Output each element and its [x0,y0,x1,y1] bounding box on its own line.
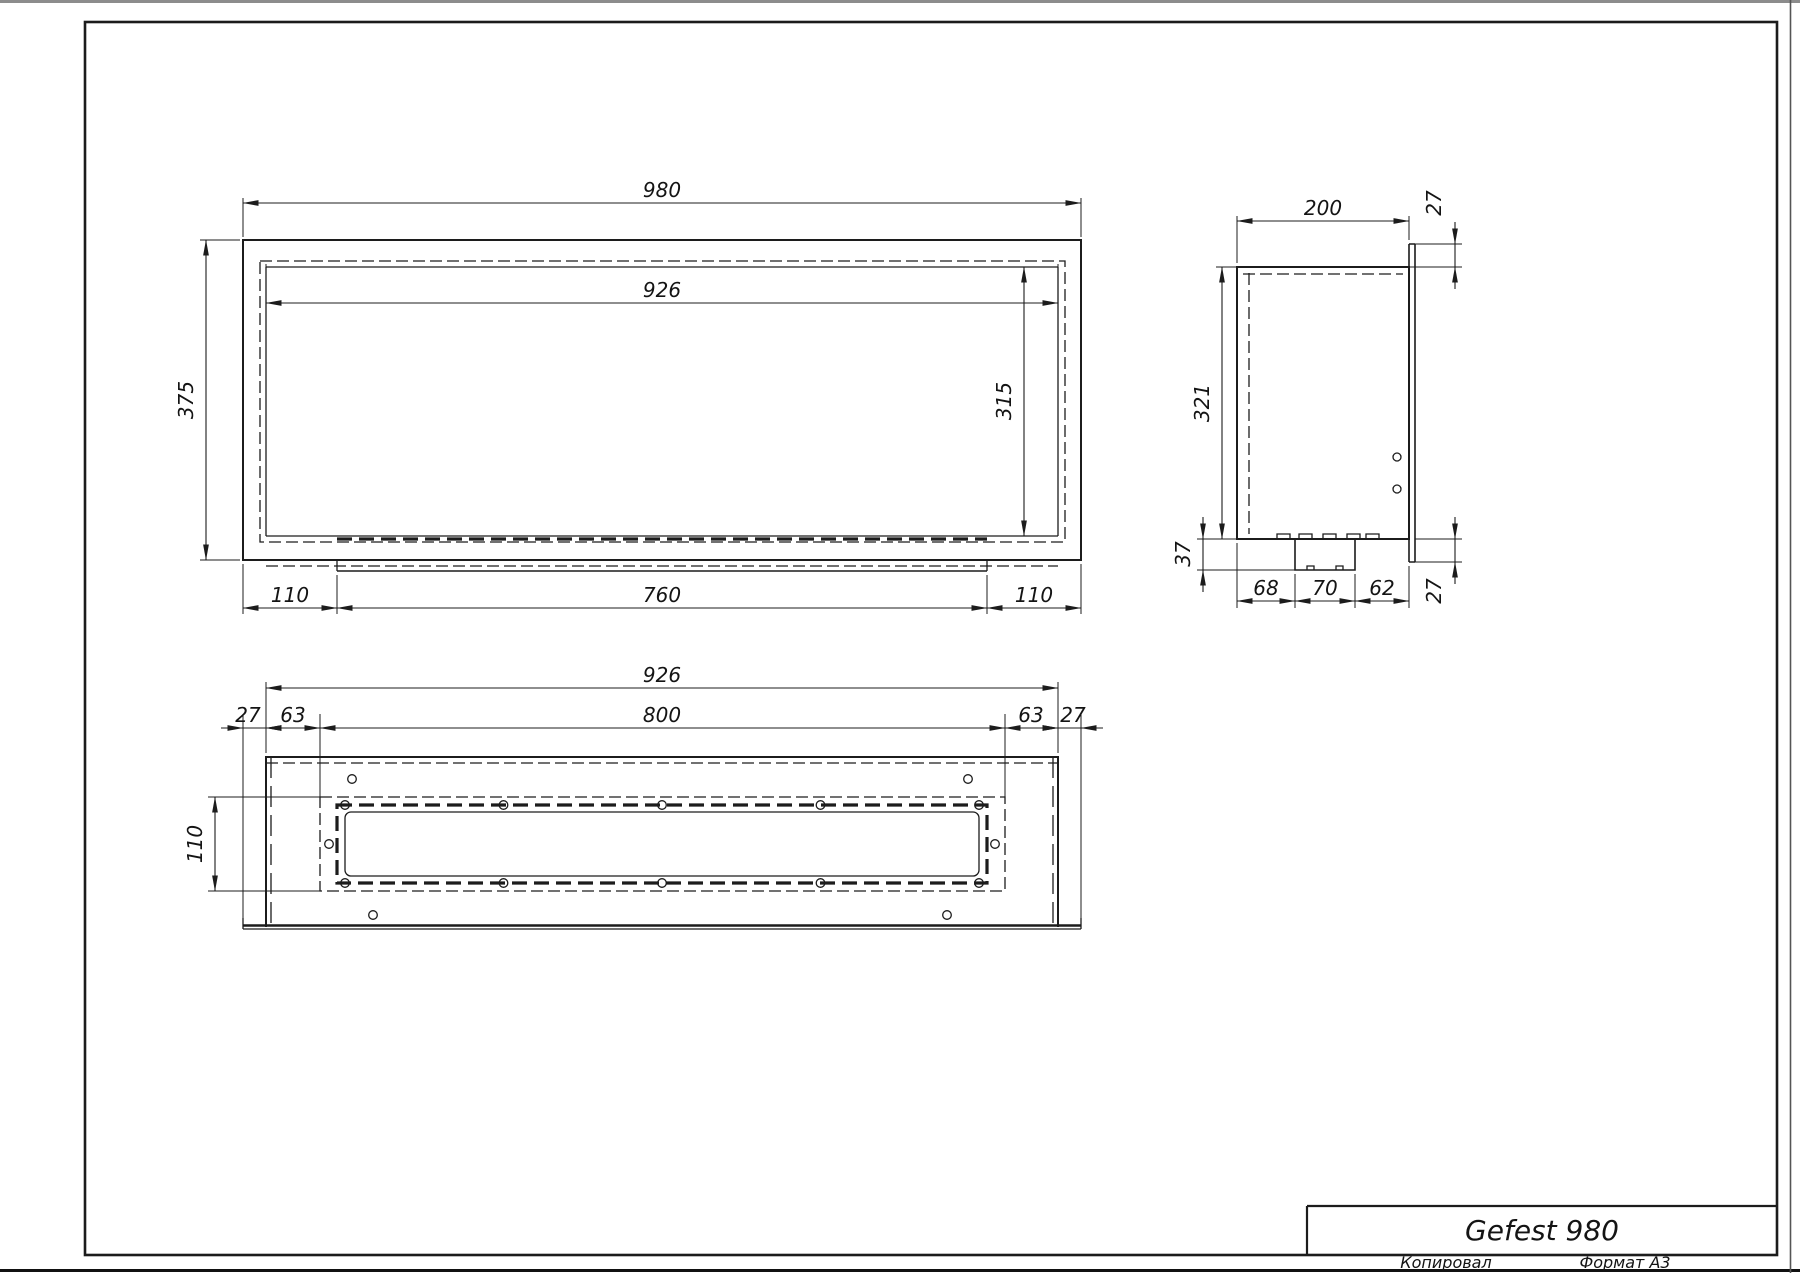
front-opening [266,267,1058,536]
side-view: 200 27 321 37 68 70 62 [1171,190,1462,608]
side-tray-outline [1295,539,1355,570]
dim-front-overall-width: 980 [643,178,681,202]
front-view: 980 926 375 315 110 760 110 [174,178,1081,614]
top-view-outline [243,757,1081,929]
dim-front-tray-width: 760 [643,583,681,607]
dim-front-bottom-right: 110 [1015,583,1053,607]
dim-side-tray-offset-front: 68 [1253,576,1278,600]
side-view-dimensions: 200 27 321 37 68 70 62 [1171,190,1462,608]
top-body [266,757,1058,927]
top-cutout-hidden [320,797,1005,891]
top-hidden-walls [271,757,1053,925]
dim-front-opening-width: 926 [643,278,681,302]
dim-side-tray-width: 70 [1312,576,1337,600]
dim-side-flange-top: 27 [1422,190,1446,216]
side-body [1237,267,1409,539]
title-block: Gefest 980 [1307,1206,1777,1255]
dim-side-tray-offset-back: 62 [1369,576,1394,600]
side-hidden-lines [1243,273,1403,534]
title-block-name: Gefest 980 [1465,1214,1619,1247]
top-view-dimensions: 926 27 63 800 63 27 110 [183,663,1103,918]
dim-side-depth: 200 [1304,196,1342,220]
dim-side-height: 321 [1190,384,1214,422]
dim-front-opening-height: 315 [992,382,1016,420]
dim-top-slot-offset-left: 63 [280,703,305,727]
drawing-canvas: 980 926 375 315 110 760 110 [0,0,1800,1273]
top-view: 926 27 63 800 63 27 110 [183,663,1103,929]
dim-front-bottom-left: 110 [271,583,309,607]
drawing-page: 980 926 375 315 110 760 110 [0,0,1800,1273]
dim-front-overall-height: 375 [174,381,198,419]
side-hole-lower [1393,485,1401,493]
dim-top-overhang-right: 27 [1060,703,1086,727]
dim-top-body-width: 926 [643,663,681,687]
dim-top-overhang-left: 27 [235,703,261,727]
side-view-outline [1237,244,1415,562]
drawing-border [85,22,1777,1255]
side-hole-upper [1393,453,1401,461]
front-view-dimensions: 980 926 375 315 110 760 110 [174,178,1081,614]
front-view-hidden-lines [260,261,1065,566]
dim-top-slot-width: 110 [183,825,207,863]
page-frame [0,0,1800,1273]
top-view-hidden-lines [266,757,1058,925]
dim-top-slot-offset-right: 63 [1018,703,1043,727]
top-flange-edge-inner [243,918,1081,929]
dim-side-tray-depth: 37 [1171,541,1195,567]
side-view-holes [1393,453,1401,493]
top-slot-hidden [337,805,987,883]
footer-copied-label: Копировал [1400,1253,1491,1272]
top-slot-inner [345,812,979,876]
dim-side-flange-bottom: 27 [1422,578,1446,604]
top-view-burner-slot [337,805,987,883]
dim-top-slot-length: 800 [643,703,681,727]
side-view-tray [1295,539,1355,570]
footer-format-label: Формат А3 [1579,1253,1670,1272]
